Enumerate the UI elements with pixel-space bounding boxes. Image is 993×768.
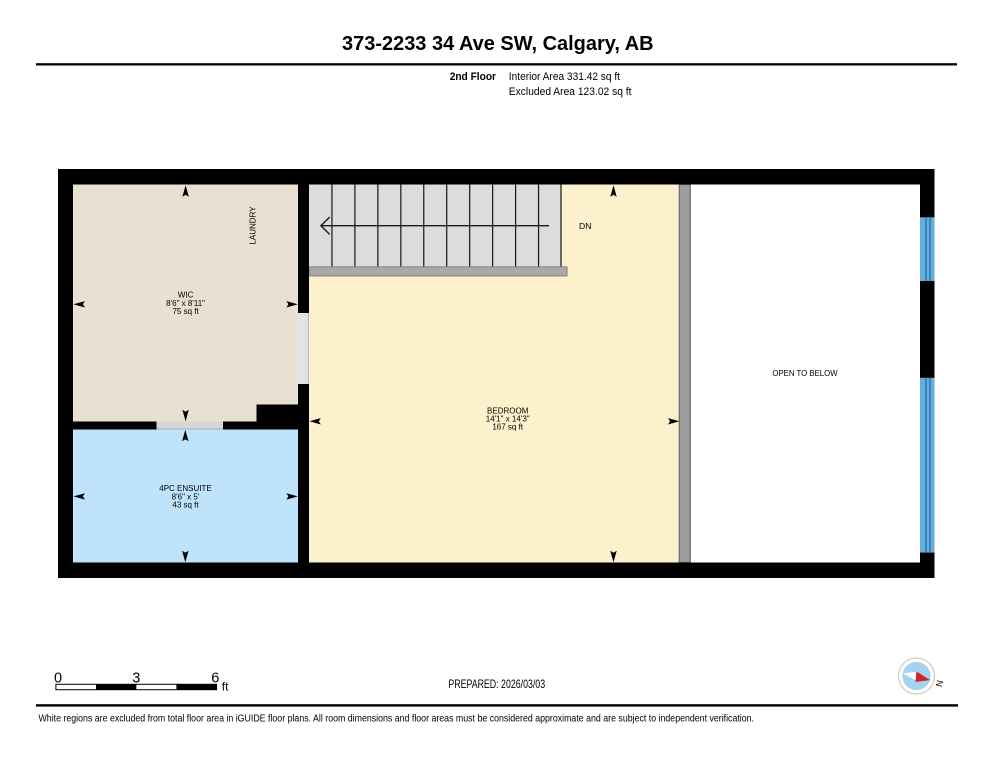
- svg-text:ft: ft: [222, 679, 229, 693]
- svg-text:43 sq ft: 43 sq ft: [172, 501, 199, 510]
- svg-text:OPEN TO BELOW: OPEN TO BELOW: [772, 369, 838, 378]
- svg-text:LAUNDRY: LAUNDRY: [249, 206, 258, 245]
- svg-text:2nd Floor: 2nd Floor: [450, 71, 497, 83]
- svg-text:DN: DN: [579, 221, 591, 231]
- svg-text:White regions are excluded fro: White regions are excluded from total fl…: [39, 713, 755, 724]
- svg-text:373-2233 34 Ave SW, Calgary, A: 373-2233 34 Ave SW, Calgary, AB: [342, 32, 654, 55]
- svg-text:Excluded Area 123.02 sq ft: Excluded Area 123.02 sq ft: [509, 86, 632, 98]
- svg-text:PREPARED: 2026/03/03: PREPARED: 2026/03/03: [448, 678, 545, 691]
- svg-text:75 sq ft: 75 sq ft: [172, 307, 199, 316]
- svg-text:Interior Area 331.42 sq ft: Interior Area 331.42 sq ft: [509, 71, 620, 83]
- svg-text:167 sq ft: 167 sq ft: [492, 423, 523, 432]
